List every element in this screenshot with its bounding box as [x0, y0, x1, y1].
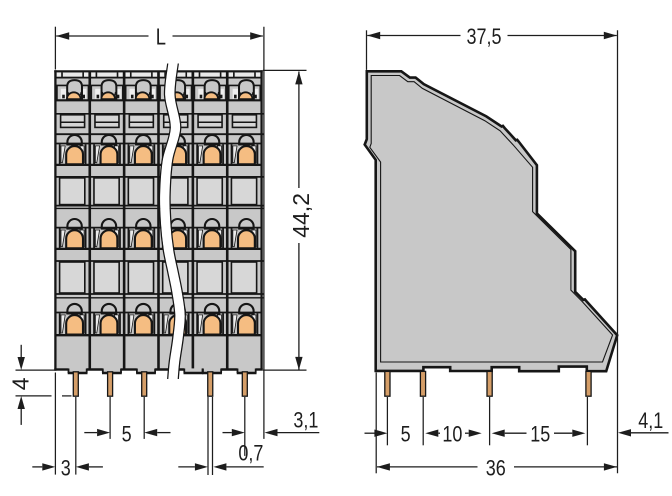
svg-text:3: 3 — [61, 457, 71, 481]
svg-text:37,5: 37,5 — [466, 25, 501, 49]
svg-text:3,1: 3,1 — [293, 409, 318, 433]
svg-text:4,1: 4,1 — [638, 409, 663, 433]
svg-text:0,7: 0,7 — [238, 442, 263, 466]
svg-text:15: 15 — [530, 423, 550, 447]
svg-text:5: 5 — [122, 423, 132, 447]
svg-text:4: 4 — [8, 377, 34, 390]
svg-text:5: 5 — [401, 423, 411, 447]
svg-text:L: L — [156, 25, 166, 50]
svg-text:36: 36 — [486, 457, 506, 481]
svg-text:44,2: 44,2 — [288, 193, 314, 238]
svg-text:10: 10 — [442, 423, 462, 447]
